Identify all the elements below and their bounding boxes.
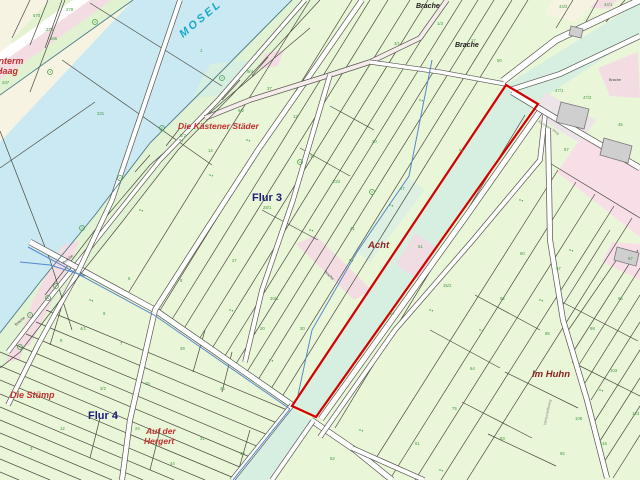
parcel-number: 83 [500, 436, 505, 441]
parcel-number: 12 [293, 114, 298, 119]
parcel-number: 237 [2, 80, 10, 85]
tree-icon-dot [221, 77, 222, 78]
grass-icon [142, 210, 143, 211]
parcel-number: 67 [556, 266, 561, 271]
grass-icon [309, 229, 310, 230]
grass-icon [462, 150, 463, 151]
tree-icon-dot [94, 21, 95, 22]
map-canvas[interactable]: 27857027328623723119/49/2145/23712172786… [0, 0, 640, 480]
parcel-number: 50 [497, 58, 502, 63]
grass-icon [269, 359, 270, 360]
label-flur-3: Flur 3 [252, 192, 282, 204]
parcel-number: 20 [372, 139, 377, 144]
parcel-number: 60 [520, 251, 525, 256]
grass-icon [542, 300, 543, 301]
parcel-number: 29 [180, 346, 185, 351]
parcel-number: 12 [60, 426, 65, 431]
parcel-number: 47/1 [555, 88, 564, 93]
parcel-number: 570 [33, 13, 41, 18]
grass-icon [569, 249, 570, 250]
parcel-number: 10/2 [332, 179, 341, 184]
tree-icon-dot [119, 177, 120, 178]
grass-icon [419, 99, 420, 100]
parcel-number: 286 [50, 36, 58, 41]
parcel-number: 2/2 [100, 386, 107, 391]
grass-icon [89, 299, 90, 300]
label-brache-top1: Brache [416, 3, 440, 10]
parcel-number: 3/1 [394, 41, 401, 46]
tree-icon-dot [47, 297, 48, 298]
parcel-number: 30 [300, 326, 305, 331]
label-flur3-parcel: 28/1 [263, 205, 272, 210]
parcel-number: 57 [564, 147, 569, 152]
parcel-number: 1/3 [437, 21, 444, 26]
parcel-number: 15 [145, 381, 150, 386]
parcel-number: 123 [632, 411, 640, 416]
grass-icon [212, 175, 213, 176]
label-auf-der-2: Hergert [144, 436, 175, 446]
grass-icon [442, 470, 443, 471]
tree-icon-dot [371, 191, 372, 192]
parcel-number: 40 [240, 451, 245, 456]
parcel-number: 47 [400, 186, 405, 191]
grass-icon [139, 209, 140, 210]
parcel-number: 85 [545, 331, 550, 336]
label-unterm-haag-2: Haag [0, 66, 19, 76]
parcel-number: 14 [208, 148, 213, 153]
label-kaestener-staeder: Die Kästener Städer [178, 121, 259, 131]
parcel-number: 95 [618, 296, 623, 301]
parcel-number: 4/1 [80, 326, 87, 331]
grass-icon [482, 330, 483, 331]
label-flur-4: Flur 4 [88, 410, 119, 422]
parcel-number: 231 [97, 111, 105, 116]
tree-icon-dot [49, 71, 50, 72]
parcel-number: 98 [590, 326, 595, 331]
parcel-number: 31 [200, 436, 205, 441]
parcel-number: 44/1 [604, 2, 613, 7]
parcel-number: 5/2 [180, 133, 187, 138]
grass-icon [352, 260, 353, 261]
parcel-number: 15/2 [443, 283, 452, 288]
label-auf-der-1: Auf der [145, 426, 176, 436]
grass-icon [459, 149, 460, 150]
grass-icon [272, 360, 273, 361]
label-unterm-haag-1: Unterm [0, 56, 24, 66]
parcel-number: 9/4 [247, 69, 254, 74]
parcel-number: 62 [500, 296, 505, 301]
grass-icon [179, 139, 180, 140]
parcel-number: 25 [220, 386, 225, 391]
grass-icon [249, 140, 250, 141]
grass-icon [362, 430, 363, 431]
parcel-number: 61 [415, 441, 420, 446]
parcel-number: 27 [232, 258, 237, 263]
grass-icon [432, 310, 433, 311]
parcel-number: 17 [310, 154, 315, 159]
grass-icon [479, 329, 480, 330]
tree-icon-dot [299, 161, 300, 162]
grass-icon [429, 309, 430, 310]
parcel-number: 57 [628, 256, 633, 261]
grass-icon [519, 199, 520, 200]
tree-icon-dot [81, 227, 82, 228]
parcel-number: 92 [560, 451, 565, 456]
parcel-number: 37 [267, 86, 272, 91]
parcel-number: 57 [390, 311, 395, 316]
grass-icon [209, 174, 210, 175]
parcel-number: 116 [600, 441, 607, 446]
parcel-number: 64 [470, 366, 475, 371]
grass-icon [349, 259, 350, 260]
grass-icon [572, 250, 573, 251]
tree-icon-dot [161, 127, 162, 128]
parcel-number: 278 [66, 7, 74, 12]
grass-icon [312, 230, 313, 231]
grass-icon [599, 389, 600, 390]
grass-icon [439, 469, 440, 470]
parcel-number: 44 [170, 461, 175, 466]
parcel-number: 75 [452, 406, 457, 411]
parcel-number: 44/2 [559, 4, 568, 9]
parcel-number: 24 [135, 426, 140, 431]
parcel-number: 273 [46, 27, 54, 32]
map-viewport: 27857027328623723119/49/2145/23712172786… [0, 0, 640, 480]
tree-icon-dot [19, 346, 20, 347]
grass-icon [182, 140, 183, 141]
grass-icon [602, 390, 603, 391]
grass-icon [539, 299, 540, 300]
grass-icon [359, 429, 360, 430]
grass-icon [422, 100, 423, 101]
tree-icon-dot [55, 285, 56, 286]
label-im-huhn: Im Huhn [532, 369, 570, 380]
label-brache-top2: Brache [455, 42, 479, 49]
grass-icon [246, 139, 247, 140]
label-die-stuemp: Die Stümp [10, 390, 55, 400]
parcel-number: 61 [418, 244, 423, 249]
parcel-number: 52 [330, 456, 335, 461]
parcel-number: 45 [618, 122, 623, 127]
grass-icon [232, 310, 233, 311]
grass-icon [389, 204, 390, 205]
label-acht: Acht [367, 240, 390, 251]
parcel-number: 41 [350, 226, 355, 231]
parcel-number: 20/1 [270, 296, 279, 301]
grass-icon [229, 309, 230, 310]
grass-icon [522, 200, 523, 201]
parcel-number: 108 [575, 416, 583, 421]
parcel-number: 20 [260, 326, 265, 331]
grass-icon [392, 205, 393, 206]
parcel-number: 47/2 [583, 95, 592, 100]
label-brache-ne: Brache [609, 78, 621, 82]
tree-icon-dot [29, 314, 30, 315]
parcel-number: 9/2 [238, 108, 245, 113]
grass-icon [92, 300, 93, 301]
parcel-number: 103 [610, 368, 618, 373]
